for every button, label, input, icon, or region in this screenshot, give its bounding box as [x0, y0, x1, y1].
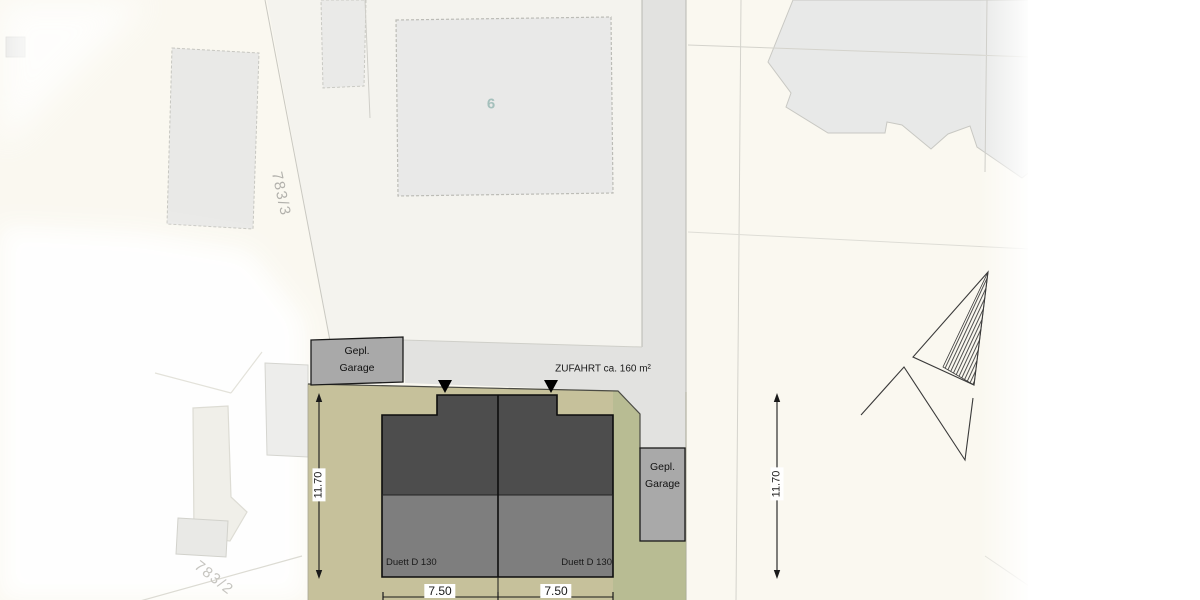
garage-left-label: Gepl. Garage	[311, 343, 403, 383]
dimension-right-11-70: 11.70	[771, 468, 784, 501]
house-unit-right-label: Duett D 130	[512, 557, 612, 568]
dimension-bottom-left-7-50: 7.50	[424, 584, 455, 598]
garage-left-label-line2: Garage	[339, 360, 374, 377]
house-number-6: 6	[487, 96, 495, 113]
garage-left-label-line1: Gepl.	[344, 343, 369, 360]
site-plan-canvas: 783/3 783/2 6 ZUFAHRT ca. 160 m² Gepl. G…	[0, 0, 1200, 600]
driveway-label: ZUFAHRT ca. 160 m²	[555, 364, 651, 375]
garage-right-label: Gepl. Garage	[640, 459, 685, 499]
dimension-bottom-right-7-50: 7.50	[540, 584, 571, 598]
site-plan-drawing	[0, 0, 1200, 600]
garage-right-label-line2: Garage	[645, 476, 680, 493]
house-unit-left-label: Duett D 130	[386, 557, 437, 568]
dimension-left-11-70: 11.70	[313, 469, 326, 502]
duplex-house	[382, 395, 613, 577]
garage-right-label-line1: Gepl.	[650, 459, 675, 476]
